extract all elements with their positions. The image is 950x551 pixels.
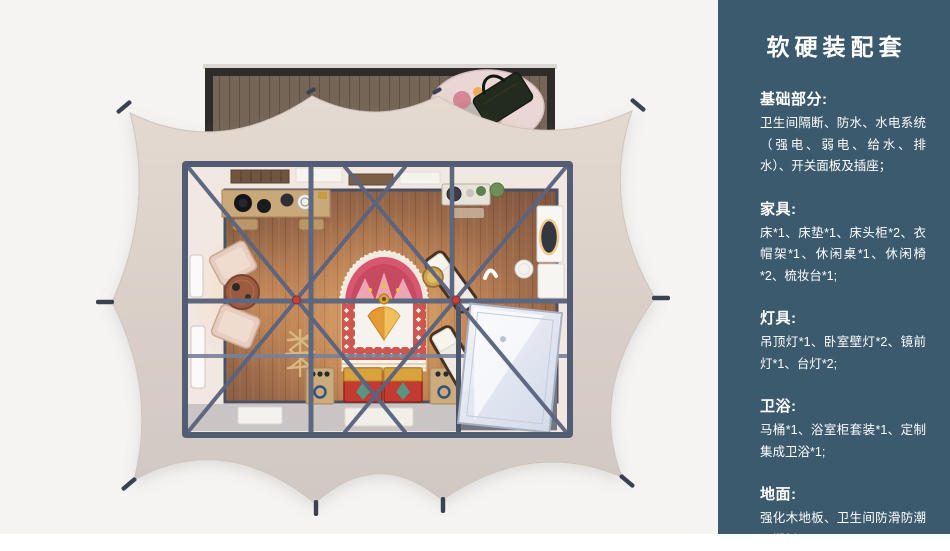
spec-section-bathroom: 卫浴: 马桶*1、浴室柜套装*1、定制集成卫浴*1; <box>760 395 926 463</box>
tie-down <box>630 98 647 113</box>
tie-down <box>652 296 670 300</box>
spec-body: 吊顶灯*1、卧室壁灯*2、镜前灯*1、台灯*2; <box>760 332 926 375</box>
tie-down <box>96 300 114 304</box>
spec-panel: 软硬装配套 基础部分: 卫生间隔断、防水、水电系统（强电、弱电、给水、排水）、开… <box>718 0 950 534</box>
spec-heading: 地面: <box>760 483 926 504</box>
spec-body: 强化木地板、卫生间防滑防潮石塑板; <box>760 508 926 551</box>
plant <box>476 186 486 196</box>
plant <box>490 183 504 197</box>
panel-title: 软硬装配套 <box>718 28 950 62</box>
spec-section-floor: 地面: 强化木地板、卫生间防滑防潮石塑板; <box>760 483 926 551</box>
hat <box>257 199 271 213</box>
spec-list: 基础部分: 卫生间隔断、防水、水电系统（强电、弱电、给水、排水）、开关面板及插座… <box>718 68 950 551</box>
box <box>318 192 327 199</box>
storage-chest <box>384 368 422 402</box>
window <box>190 255 203 297</box>
spec-section-furniture: 家具: 床*1、床垫*1、床头柜*2、衣帽架*1、休闲桌*1、休闲椅*2、梳妆台… <box>760 198 926 288</box>
spec-heading: 灯具: <box>760 307 926 328</box>
bed <box>340 251 428 402</box>
spec-heading: 家具: <box>760 198 926 219</box>
tie-down <box>121 477 138 492</box>
frame-joint <box>293 296 301 304</box>
mirror <box>540 220 558 254</box>
spec-body: 卫生间隔断、防水、水电系统（强电、弱电、给水、排水）、开关面板及插座； <box>760 113 926 178</box>
tie-down <box>441 497 445 513</box>
spec-section-basics: 基础部分: 卫生间隔断、防水、水电系统（强电、弱电、给水、排水）、开关面板及插座… <box>760 88 926 178</box>
frame-joint <box>452 296 460 304</box>
spec-heading: 卫浴: <box>760 395 926 416</box>
spec-body: 床*1、床垫*1、床头柜*2、衣帽架*1、休闲桌*1、休闲椅*2、梳妆台*1; <box>760 223 926 288</box>
vanity-stool <box>515 260 533 278</box>
door-mat <box>238 407 282 424</box>
spec-body: 马桶*1、浴室柜套装*1、定制集成卫浴*1; <box>760 420 926 463</box>
kettle <box>281 194 294 207</box>
tie-down <box>619 474 636 489</box>
tie-down <box>116 100 133 115</box>
spec-heading: 基础部分: <box>760 88 926 109</box>
vanity-cabinet <box>538 264 564 298</box>
tie-down <box>314 500 318 516</box>
floorplan-render <box>0 0 718 534</box>
spec-section-lighting: 灯具: 吊顶灯*1、卧室壁灯*2、镜前灯*1、台灯*2; <box>760 307 926 375</box>
tea-table <box>225 275 259 309</box>
